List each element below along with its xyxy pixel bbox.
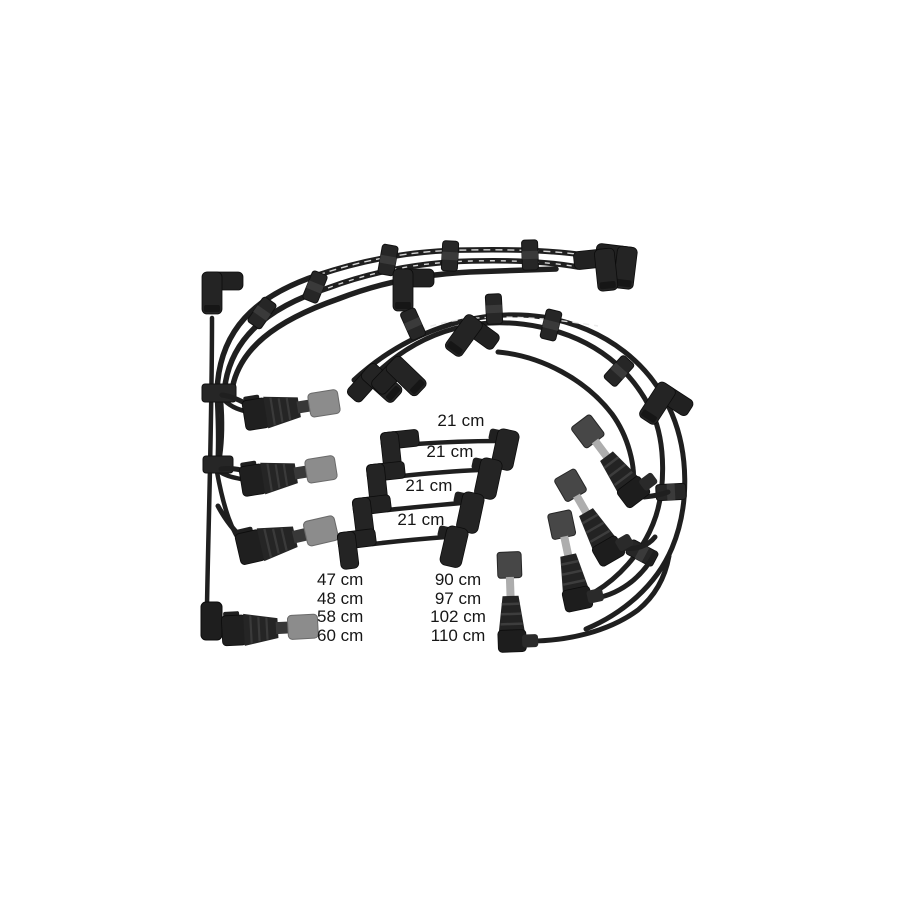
lead-elbow-left <box>337 528 379 569</box>
cable-clip <box>400 307 427 341</box>
lead-length-label: 90 cm <box>415 571 501 590</box>
lead-lengths-left-column: 47 cm 48 cm 58 cm 60 cm <box>317 571 363 645</box>
lead-length-label: 60 cm <box>317 627 363 646</box>
lead-length-label: 58 cm <box>317 608 363 627</box>
short-lead-length-label: 21 cm <box>437 411 484 431</box>
top-left-elbow-boot <box>202 272 243 314</box>
spark-plug-boot-horizontal <box>238 448 338 498</box>
spark-plug-boot-horizontal <box>241 382 341 432</box>
cable-clip <box>302 270 328 304</box>
elbow-boot <box>393 269 434 311</box>
lead-length-label: 48 cm <box>317 590 363 609</box>
product-photo-ignition-cable-set: 21 cm 21 cm 21 cm 21 cm 47 cm 48 cm 58 c… <box>0 0 900 900</box>
elbow-boot <box>638 380 695 438</box>
cable-clip <box>521 240 538 271</box>
cable-print-marks-outer <box>318 250 602 288</box>
cable-clip <box>441 241 459 272</box>
elbow-boot <box>573 248 618 294</box>
lead-lengths-right-column: 90 cm 97 cm 102 cm 110 cm <box>415 571 501 645</box>
lead-length-label: 97 cm <box>415 590 501 609</box>
short-lead-length-label: 21 cm <box>397 510 444 530</box>
bottom-left-elbow <box>201 602 222 640</box>
cable-clip <box>540 309 563 342</box>
spark-plug-boot-straight <box>495 551 538 652</box>
short-lead-length-label: 21 cm <box>426 442 473 462</box>
short-lead-length-label: 21 cm <box>405 476 452 496</box>
lead-length-label: 47 cm <box>317 571 363 590</box>
cable-clip <box>485 294 503 325</box>
lead-length-label: 102 cm <box>415 608 501 627</box>
spark-plug-boot-horizontal <box>221 607 319 647</box>
lead-length-label: 110 cm <box>415 627 501 646</box>
spark-plug-boot-horizontal <box>234 508 340 566</box>
